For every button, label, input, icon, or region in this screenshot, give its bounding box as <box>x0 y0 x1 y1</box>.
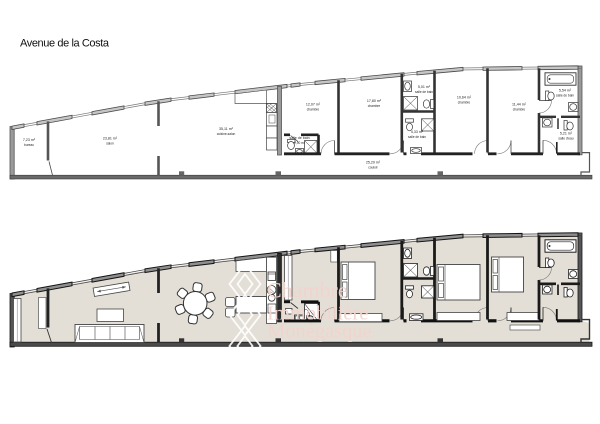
svg-text:11,44 m²: 11,44 m² <box>512 103 527 107</box>
svg-text:2,90 m²: 2,90 m² <box>294 141 305 145</box>
svg-text:chambre: chambre <box>307 108 320 112</box>
svg-text:cuisine-salon: cuisine-salon <box>217 132 236 136</box>
svg-text:salle d'eau: salle d'eau <box>558 137 573 141</box>
svg-text:5,54 m²: 5,54 m² <box>559 89 572 93</box>
svg-text:Monégasque: Monégasque <box>267 321 372 343</box>
svg-text:5,01 m²: 5,01 m² <box>418 85 431 89</box>
svg-text:4,33 m²: 4,33 m² <box>411 130 424 134</box>
svg-text:5,21 m²: 5,21 m² <box>560 132 573 136</box>
svg-text:couloir: couloir <box>368 166 378 170</box>
svg-text:salle de bain: salle de bain <box>556 94 574 98</box>
svg-text:salle de bain: salle de bain <box>415 90 433 94</box>
svg-text:7,23 m²: 7,23 m² <box>23 138 36 142</box>
svg-text:chambre: chambre <box>513 108 526 112</box>
svg-text:10,64 m²: 10,64 m² <box>457 96 472 100</box>
svg-text:salle de bain: salle de bain <box>408 135 426 139</box>
svg-text:25,29 m²: 25,29 m² <box>366 161 381 165</box>
svg-text:35,11 m²: 35,11 m² <box>219 127 234 131</box>
svg-text:salon: salon <box>106 142 114 146</box>
svg-text:chambre: chambre <box>458 101 471 105</box>
svg-text:23,81 m²: 23,81 m² <box>103 137 118 141</box>
svg-text:Chambre: Chambre <box>267 278 348 303</box>
svg-text:chambre: chambre <box>368 104 381 108</box>
svg-text:17,80 m²: 17,80 m² <box>367 99 382 103</box>
svg-text:Avenue de la Costa: Avenue de la Costa <box>20 38 110 50</box>
svg-text:salle de bain: salle de bain <box>289 136 309 140</box>
svg-text:bureau: bureau <box>24 143 34 147</box>
svg-text:12,07 m²: 12,07 m² <box>306 103 321 107</box>
